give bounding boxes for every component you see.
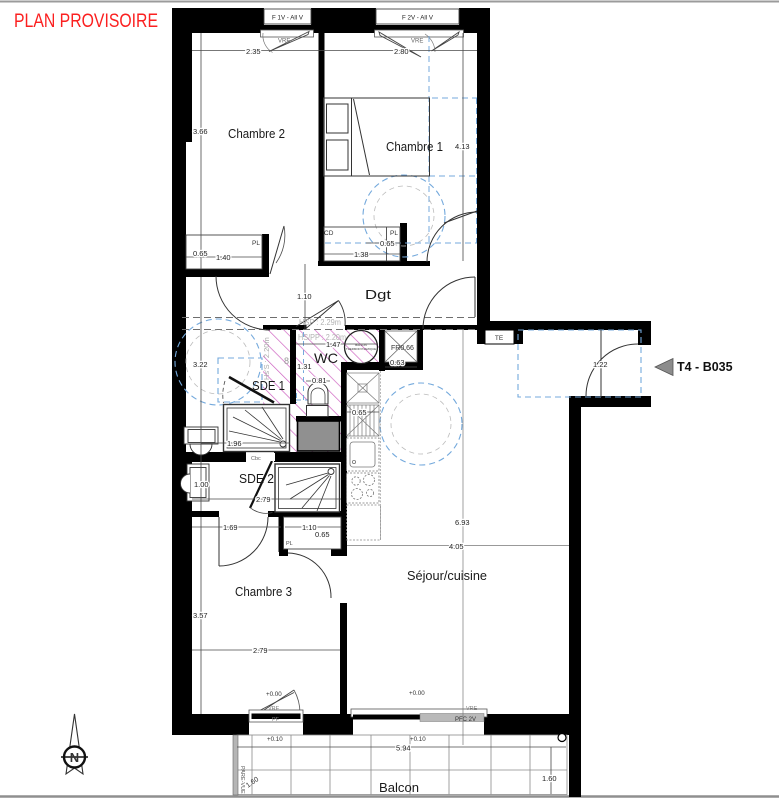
svg-text:WC: WC	[314, 350, 338, 366]
svg-text:PL: PL	[286, 541, 293, 547]
svg-text:+0.10: +0.10	[410, 736, 426, 743]
svg-text:2.35: 2.35	[246, 47, 261, 56]
svg-text:F 1V - All V: F 1V - All V	[272, 15, 304, 22]
svg-text:Chambre 2: Chambre 2	[228, 126, 285, 141]
svg-text:VRE: VRE	[411, 39, 423, 45]
svg-text:PFC 2V: PFC 2V	[455, 717, 476, 723]
svg-text:VRE: VRE	[466, 706, 478, 712]
svg-text:VRE: VRE	[268, 706, 280, 712]
svg-text:6.93: 6.93	[455, 518, 470, 527]
svg-text:1.40: 1.40	[216, 253, 231, 262]
svg-text:Dgt: Dgt	[365, 287, 391, 302]
svg-text:PL: PL	[390, 230, 398, 237]
svg-text:4.05: 4.05	[449, 542, 464, 551]
svg-text:Balcon: Balcon	[379, 780, 419, 795]
svg-text:PF: PF	[272, 717, 280, 723]
svg-text:HS/PP : 2.20m: HS/PP : 2.20m	[298, 333, 346, 342]
svg-text:N: N	[70, 750, 79, 765]
svg-text:F 2V - All V: F 2V - All V	[402, 15, 434, 22]
svg-text:Chambre 1: Chambre 1	[386, 139, 443, 154]
svg-text:1.96: 1.96	[227, 439, 242, 448]
svg-text:2.79: 2.79	[256, 495, 271, 504]
svg-text:3.66: 3.66	[193, 127, 208, 136]
svg-text:8: 8	[284, 356, 289, 366]
svg-text:1.00: 1.00	[194, 480, 209, 489]
svg-text:+0.10: +0.10	[267, 736, 283, 743]
svg-text:Séjour/cuisine: Séjour/cuisine	[407, 568, 487, 583]
svg-text:+0.00: +0.00	[266, 691, 282, 698]
svg-text:SDE 2: SDE 2	[239, 471, 274, 486]
svg-text:3.22: 3.22	[193, 360, 208, 369]
svg-text:0.81: 0.81	[312, 376, 327, 385]
svg-text:Chambre 3: Chambre 3	[235, 584, 292, 599]
svg-text:3.57: 3.57	[193, 611, 208, 620]
svg-text:T4 - B035: T4 - B035	[677, 360, 733, 374]
svg-text:Cbc: Cbc	[251, 456, 261, 462]
svg-text:THERMODYNAMIQUE: THERMODYNAMIQUE	[346, 347, 376, 351]
svg-text:VRE: VRE	[278, 39, 290, 45]
svg-text:1.69: 1.69	[223, 523, 238, 532]
svg-text:+0.00: +0.00	[409, 690, 425, 697]
svg-text:0.65: 0.65	[193, 249, 208, 258]
svg-text:1.10: 1.10	[297, 292, 312, 301]
svg-text:1.60: 1.60	[542, 774, 557, 783]
svg-text:PLAN PROVISOIRE: PLAN PROVISOIRE	[14, 10, 158, 32]
svg-text:2.80: 2.80	[394, 47, 409, 56]
svg-text:FR0.66: FR0.66	[391, 345, 414, 352]
svg-text:1.22: 1.22	[593, 360, 608, 369]
svg-text:2.79: 2.79	[253, 646, 268, 655]
svg-text:HSP : 2.29m: HSP : 2.29m	[299, 318, 341, 327]
svg-text:Hs'S : 2.20m: Hs'S : 2.20m	[262, 337, 271, 380]
svg-text:0.65: 0.65	[352, 408, 367, 417]
svg-text:0.65: 0.65	[315, 530, 330, 539]
svg-text:TE: TE	[495, 335, 504, 342]
svg-text:1.38: 1.38	[354, 250, 369, 259]
svg-text:PARE-VUE: PARE-VUE	[239, 766, 245, 794]
svg-text:0.63: 0.63	[390, 358, 405, 367]
svg-text:1.31: 1.31	[297, 362, 312, 371]
svg-text:PL: PL	[252, 240, 260, 247]
svg-text:4.13: 4.13	[455, 142, 470, 151]
svg-text:5.94: 5.94	[396, 744, 411, 753]
svg-text:0.65: 0.65	[380, 239, 395, 248]
svg-text:CD: CD	[324, 230, 334, 237]
